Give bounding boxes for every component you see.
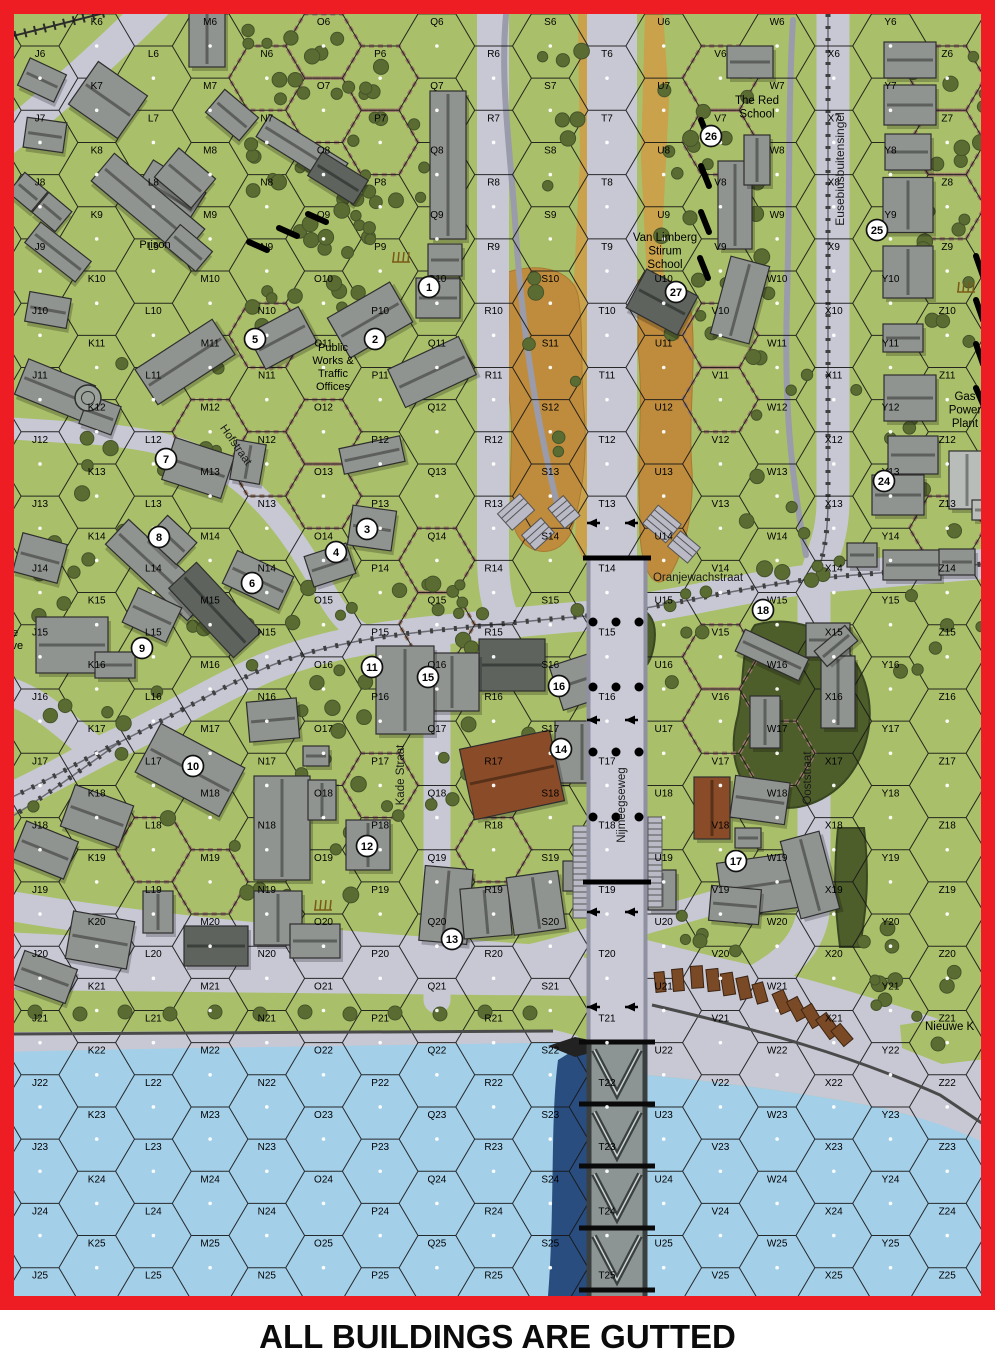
hex-label: L17 — [145, 756, 162, 767]
hex-label: Y15 — [882, 596, 900, 607]
hex-label: S23 — [541, 1110, 559, 1121]
hex-label: L20 — [145, 949, 162, 960]
location-marker-16: 16 — [549, 676, 570, 697]
svg-text:25: 25 — [871, 225, 883, 237]
hex-label: T16 — [598, 692, 616, 703]
hex-label: Q25 — [427, 1239, 446, 1250]
hex-label: P18 — [371, 821, 389, 832]
hex-label: L8 — [148, 178, 160, 189]
hex-label: Z16 — [939, 692, 957, 703]
hex-label: J17 — [32, 756, 49, 767]
location-marker-12: 12 — [357, 836, 378, 857]
hex-label: M12 — [200, 403, 220, 414]
hex-label: J16 — [32, 692, 49, 703]
hex-label: Q13 — [427, 467, 446, 478]
hex-label: L16 — [145, 692, 162, 703]
hex-label: X25 — [825, 1271, 843, 1282]
building — [847, 543, 880, 571]
hex-label: Q11 — [428, 338, 447, 349]
hex-label: N12 — [258, 435, 277, 446]
hex-label: P25 — [371, 1271, 389, 1282]
hex-label: L25 — [145, 1271, 162, 1282]
hex-label: K25 — [88, 1239, 106, 1250]
hex-label: Q6 — [430, 17, 444, 28]
hex-label: S14 — [541, 531, 559, 542]
hex-label: Y17 — [882, 724, 900, 735]
hex-label: P15 — [371, 628, 389, 639]
hex-label: N6 — [260, 49, 273, 60]
hex-label: N9 — [260, 242, 273, 253]
hex-label: V9 — [714, 242, 727, 253]
hex-label: Y21 — [882, 981, 900, 992]
map-layers: J6J7J8J9J10J11J12J13J14J15J16J17J18J19J2… — [0, 0, 995, 1310]
hex-label: V7 — [714, 113, 727, 124]
hex-label: V16 — [712, 692, 730, 703]
hex-label: O9 — [317, 210, 331, 221]
hex-label: T15 — [598, 628, 616, 639]
hex-label: P24 — [371, 1206, 389, 1217]
hex-label: Z15 — [939, 628, 957, 639]
hex-label: O15 — [314, 596, 333, 607]
hex-label: R24 — [484, 1206, 503, 1217]
hex-label: M25 — [200, 1239, 220, 1250]
landmark-label: Prison — [139, 239, 170, 251]
hex-label: L12 — [145, 435, 162, 446]
hex-label: Y14 — [882, 531, 900, 542]
hex-label: S17 — [541, 724, 559, 735]
hex-label: X24 — [825, 1206, 843, 1217]
hex-label: Q15 — [427, 596, 446, 607]
hex-label: V20 — [712, 949, 730, 960]
hex-label: Z8 — [941, 178, 953, 189]
hex-label: X11 — [825, 371, 842, 382]
hex-label: W14 — [767, 531, 788, 542]
svg-text:3: 3 — [364, 524, 370, 536]
hex-label: M7 — [203, 81, 217, 92]
svg-text:14: 14 — [555, 744, 568, 756]
location-marker-6: 6 — [242, 573, 263, 594]
hex-label: X17 — [825, 756, 843, 767]
hex-label: M18 — [200, 788, 220, 799]
hex-label: K19 — [88, 853, 106, 864]
hex-label: M24 — [200, 1174, 220, 1185]
location-marker-15: 15 — [418, 667, 439, 688]
building — [883, 550, 944, 584]
hex-label: J22 — [32, 1078, 49, 1089]
hex-label: N17 — [258, 756, 277, 767]
hex-label: S25 — [541, 1239, 559, 1250]
landmark-label: Public — [318, 342, 348, 354]
building — [290, 924, 343, 962]
hex-label: L21 — [145, 1014, 162, 1025]
hex-label: M13 — [200, 467, 220, 478]
hex-label: N14 — [258, 563, 277, 574]
building — [303, 746, 332, 770]
hex-label: X19 — [825, 885, 843, 896]
hex-label: N22 — [258, 1078, 277, 1089]
hex-label: Z22 — [939, 1078, 957, 1089]
hex-label: Q14 — [427, 531, 446, 542]
hex-label: K16 — [88, 660, 106, 671]
building — [143, 891, 176, 937]
hex-label: M22 — [200, 1046, 220, 1057]
hex-label: Q17 — [427, 724, 446, 735]
hex-label: J20 — [32, 949, 49, 960]
hex-label: N19 — [258, 885, 277, 896]
hex-label: O21 — [314, 981, 333, 992]
landmark-label: Offices — [316, 381, 351, 393]
svg-text:11: 11 — [366, 662, 378, 674]
hex-label: U8 — [657, 145, 670, 156]
hex-label: S16 — [541, 660, 559, 671]
building — [23, 117, 70, 157]
hex-label: N11 — [258, 371, 276, 382]
hex-label: K7 — [91, 81, 104, 92]
hex-label: S18 — [541, 788, 559, 799]
hex-label: P12 — [371, 435, 389, 446]
hex-label: R11 — [485, 371, 503, 382]
hex-label: S20 — [541, 917, 559, 928]
hex-label: R19 — [484, 885, 503, 896]
hex-label: V11 — [712, 371, 729, 382]
hex-label: L24 — [145, 1206, 162, 1217]
hex-label: U11 — [655, 338, 673, 349]
hex-label: U21 — [655, 981, 674, 992]
hex-label: U17 — [655, 724, 674, 735]
hex-label: Y19 — [882, 853, 900, 864]
hex-label: Q22 — [427, 1046, 446, 1057]
hex-label: J12 — [32, 435, 49, 446]
hex-label: J11 — [32, 371, 48, 382]
hex-label: M11 — [201, 338, 220, 349]
hex-label: V25 — [712, 1271, 730, 1282]
hex-label: R22 — [484, 1078, 503, 1089]
hex-label: N7 — [260, 113, 273, 124]
hex-label: Z19 — [939, 885, 957, 896]
hex-label: Z20 — [939, 949, 957, 960]
hex-label: K14 — [88, 531, 106, 542]
hex-label: R20 — [484, 949, 503, 960]
svg-text:15: 15 — [422, 672, 434, 684]
hex-label: M21 — [200, 981, 220, 992]
landmark-label: The Red — [735, 95, 779, 107]
hex-label: Z13 — [939, 499, 957, 510]
hex-label: U12 — [655, 403, 674, 414]
hex-label: N21 — [258, 1014, 277, 1025]
hex-label: S6 — [544, 17, 557, 28]
hex-label: X9 — [828, 242, 841, 253]
hex-label: R12 — [484, 435, 503, 446]
hex-label: K9 — [91, 210, 104, 221]
hex-label: X22 — [825, 1078, 843, 1089]
hex-label: P20 — [371, 949, 389, 960]
hex-label: J7 — [35, 113, 46, 124]
hex-label: X18 — [825, 821, 843, 832]
hex-label: V6 — [714, 49, 727, 60]
hex-label: N15 — [258, 628, 277, 639]
street-name: Eusebiusbuitensingel — [833, 112, 847, 225]
hex-label: L10 — [145, 306, 162, 317]
hex-label: K15 — [88, 596, 106, 607]
svg-text:16: 16 — [553, 681, 565, 693]
hex-label: X10 — [825, 306, 843, 317]
landmark-label: Nieuwe K — [925, 1021, 975, 1033]
hex-label: T12 — [598, 435, 616, 446]
hex-label: J24 — [32, 1206, 49, 1217]
hex-label: M20 — [200, 917, 220, 928]
hex-label: Y23 — [882, 1110, 900, 1121]
hex-label: O12 — [314, 403, 333, 414]
hex-label: K21 — [88, 981, 106, 992]
hex-label: M16 — [200, 660, 220, 671]
hex-label: K20 — [88, 917, 106, 928]
hex-label: O16 — [314, 660, 333, 671]
location-marker-10: 10 — [183, 756, 204, 777]
hex-label: P14 — [371, 563, 389, 574]
location-marker-13: 13 — [442, 929, 463, 950]
hex-label: W24 — [767, 1174, 788, 1185]
hex-label: U16 — [655, 660, 674, 671]
hex-label: X15 — [825, 628, 843, 639]
svg-text:1: 1 — [426, 282, 432, 294]
hex-label: M23 — [200, 1110, 220, 1121]
location-marker-7: 7 — [156, 449, 177, 470]
svg-text:9: 9 — [139, 643, 145, 655]
hex-label: O20 — [314, 917, 333, 928]
svg-text:27: 27 — [670, 287, 682, 299]
hex-label: V12 — [712, 435, 730, 446]
hex-label: P16 — [371, 692, 389, 703]
map-caption: ALL BUILDINGS ARE GUTTED — [0, 1310, 995, 1363]
hex-label: M17 — [200, 724, 220, 735]
hex-label: R14 — [484, 563, 503, 574]
hex-label: J19 — [32, 885, 49, 896]
building — [694, 777, 733, 843]
hex-label: U15 — [655, 596, 674, 607]
svg-text:17: 17 — [730, 856, 742, 868]
building — [246, 698, 303, 746]
arnhem-bridge-wargame-map: J6J7J8J9J10J11J12J13J14J15J16J17J18J19J2… — [0, 0, 995, 1310]
landmark-label: ate — [3, 627, 18, 639]
hex-label: R17 — [484, 756, 503, 767]
hex-label: S21 — [541, 981, 559, 992]
landmark-label: Traffic — [318, 368, 348, 380]
hex-label: O10 — [314, 274, 333, 285]
hex-label: T6 — [601, 49, 613, 60]
hex-label: W21 — [767, 981, 788, 992]
building — [727, 46, 776, 82]
hex-label: Z12 — [939, 435, 957, 446]
hex-label: R8 — [487, 178, 500, 189]
hex-label: X14 — [825, 563, 843, 574]
hex-label: O23 — [314, 1110, 333, 1121]
hex-label: O22 — [314, 1046, 333, 1057]
hex-label: K6 — [91, 17, 104, 28]
location-marker-4: 4 — [326, 542, 347, 563]
hex-label: Q18 — [427, 788, 446, 799]
building — [972, 500, 995, 524]
hex-label: L7 — [148, 113, 160, 124]
hex-label: U14 — [655, 531, 674, 542]
building — [883, 178, 936, 237]
hex-label: O18 — [314, 788, 333, 799]
hex-label: P9 — [374, 242, 387, 253]
hex-label: P13 — [371, 499, 389, 510]
location-marker-8: 8 — [149, 527, 170, 548]
hex-label: V22 — [712, 1078, 730, 1089]
location-marker-9: 9 — [132, 638, 153, 659]
hex-label: V18 — [712, 821, 730, 832]
location-marker-27: 27 — [666, 282, 687, 303]
hex-label: Y16 — [882, 660, 900, 671]
hex-label: Y24 — [882, 1174, 900, 1185]
hex-label: P17 — [371, 756, 389, 767]
hex-label: S19 — [541, 853, 559, 864]
location-marker-17: 17 — [726, 851, 747, 872]
hex-label: T7 — [601, 113, 613, 124]
hex-label: L15 — [145, 628, 162, 639]
hex-label: O25 — [314, 1239, 333, 1250]
location-marker-3: 3 — [357, 519, 378, 540]
hex-label: S24 — [541, 1174, 559, 1185]
hex-label: R10 — [484, 306, 503, 317]
hex-label: L14 — [145, 563, 162, 574]
hex-label: Z11 — [939, 371, 956, 382]
hex-label: P11 — [372, 371, 389, 382]
hex-label: Z9 — [941, 242, 953, 253]
hex-label: W18 — [767, 788, 788, 799]
landmark-label: School — [739, 109, 774, 121]
svg-text:24: 24 — [878, 476, 891, 488]
hex-label: R21 — [484, 1014, 503, 1025]
hex-label: L23 — [145, 1142, 162, 1153]
location-marker-1: 1 — [419, 277, 440, 298]
hex-label: O24 — [314, 1174, 333, 1185]
hex-label: X21 — [825, 1014, 843, 1025]
hex-label: P22 — [371, 1078, 389, 1089]
location-marker-18: 18 — [753, 600, 774, 621]
hex-label: X16 — [825, 692, 843, 703]
hex-label: N20 — [258, 949, 277, 960]
hex-label: T23 — [598, 1142, 616, 1153]
hex-label: S9 — [544, 210, 557, 221]
hex-label: O8 — [317, 145, 331, 156]
hex-label: L11 — [145, 371, 161, 382]
building — [884, 42, 939, 82]
building — [729, 775, 793, 829]
svg-text:26: 26 — [705, 131, 717, 143]
hex-label: U20 — [655, 917, 674, 928]
street-name: Nijmeegseweg — [616, 767, 628, 842]
hex-label: T18 — [598, 821, 616, 832]
hex-label: S10 — [541, 274, 559, 285]
hex-label: K23 — [88, 1110, 106, 1121]
hex-label: O6 — [317, 17, 331, 28]
hex-label: U9 — [657, 210, 670, 221]
hex-label: K17 — [88, 724, 106, 735]
hex-label: X23 — [825, 1142, 843, 1153]
building — [744, 135, 773, 189]
hex-label: P6 — [374, 49, 387, 60]
hex-label: V23 — [712, 1142, 730, 1153]
hex-label: J8 — [35, 178, 46, 189]
hex-label: M6 — [203, 17, 217, 28]
hex-label: T22 — [598, 1078, 616, 1089]
svg-text:5: 5 — [252, 334, 258, 346]
hex-label: Z6 — [941, 49, 953, 60]
hex-label: J21 — [32, 1014, 49, 1025]
location-marker-14: 14 — [551, 739, 572, 760]
street-name: Oranjewachstraat — [653, 572, 744, 584]
hex-label: J9 — [35, 242, 46, 253]
hex-label: M19 — [200, 853, 220, 864]
street-name: Kade Straat — [395, 744, 407, 806]
hex-label: W25 — [767, 1239, 788, 1250]
hex-label: S11 — [542, 338, 559, 349]
hex-label: Q20 — [427, 917, 446, 928]
hex-label: W7 — [770, 81, 785, 92]
svg-text:4: 4 — [333, 547, 340, 559]
building — [506, 870, 569, 939]
hex-label: W23 — [767, 1110, 788, 1121]
hex-label: K24 — [88, 1174, 106, 1185]
hex-label: J6 — [35, 49, 46, 60]
svg-text:2: 2 — [372, 334, 378, 346]
hex-label: T21 — [598, 1014, 616, 1025]
location-marker-2: 2 — [365, 329, 386, 350]
hex-label: W12 — [767, 403, 788, 414]
hex-label: Q19 — [427, 853, 446, 864]
hex-label: R13 — [484, 499, 503, 510]
hex-label: U25 — [655, 1239, 674, 1250]
landmark-label: Gas — [954, 391, 975, 403]
hex-label: Y12 — [882, 403, 900, 414]
hex-label: Q23 — [427, 1110, 446, 1121]
hex-label: P8 — [374, 178, 387, 189]
hex-label: S8 — [544, 145, 557, 156]
hex-label: K13 — [88, 467, 106, 478]
hex-label: U18 — [655, 788, 674, 799]
hex-label: R16 — [484, 692, 503, 703]
hex-label: L18 — [145, 821, 162, 832]
hex-label: V8 — [714, 178, 727, 189]
hex-label: T14 — [598, 563, 616, 574]
hex-label: W16 — [767, 660, 788, 671]
hex-label: U19 — [655, 853, 674, 864]
hex-label: Y18 — [882, 788, 900, 799]
hex-label: R23 — [484, 1142, 503, 1153]
hex-label: T10 — [598, 306, 616, 317]
hex-label: Z24 — [939, 1206, 957, 1217]
landmark-label: hive — [3, 640, 23, 652]
hex-label: T19 — [598, 885, 616, 896]
building — [479, 639, 548, 695]
hex-label: W17 — [767, 724, 788, 735]
hex-label: N16 — [258, 692, 277, 703]
hex-label: K8 — [91, 145, 104, 156]
hex-label: Y8 — [884, 145, 897, 156]
svg-text:12: 12 — [361, 841, 373, 853]
hex-label: X13 — [825, 499, 843, 510]
hex-label: Z23 — [939, 1142, 957, 1153]
hex-label: L19 — [145, 885, 162, 896]
hex-label: L22 — [145, 1078, 162, 1089]
landmark-label: Power — [949, 405, 982, 417]
hex-label: Z25 — [939, 1271, 957, 1282]
hex-label: U6 — [657, 17, 670, 28]
hex-label: J25 — [32, 1271, 49, 1282]
hex-label: O7 — [317, 81, 331, 92]
